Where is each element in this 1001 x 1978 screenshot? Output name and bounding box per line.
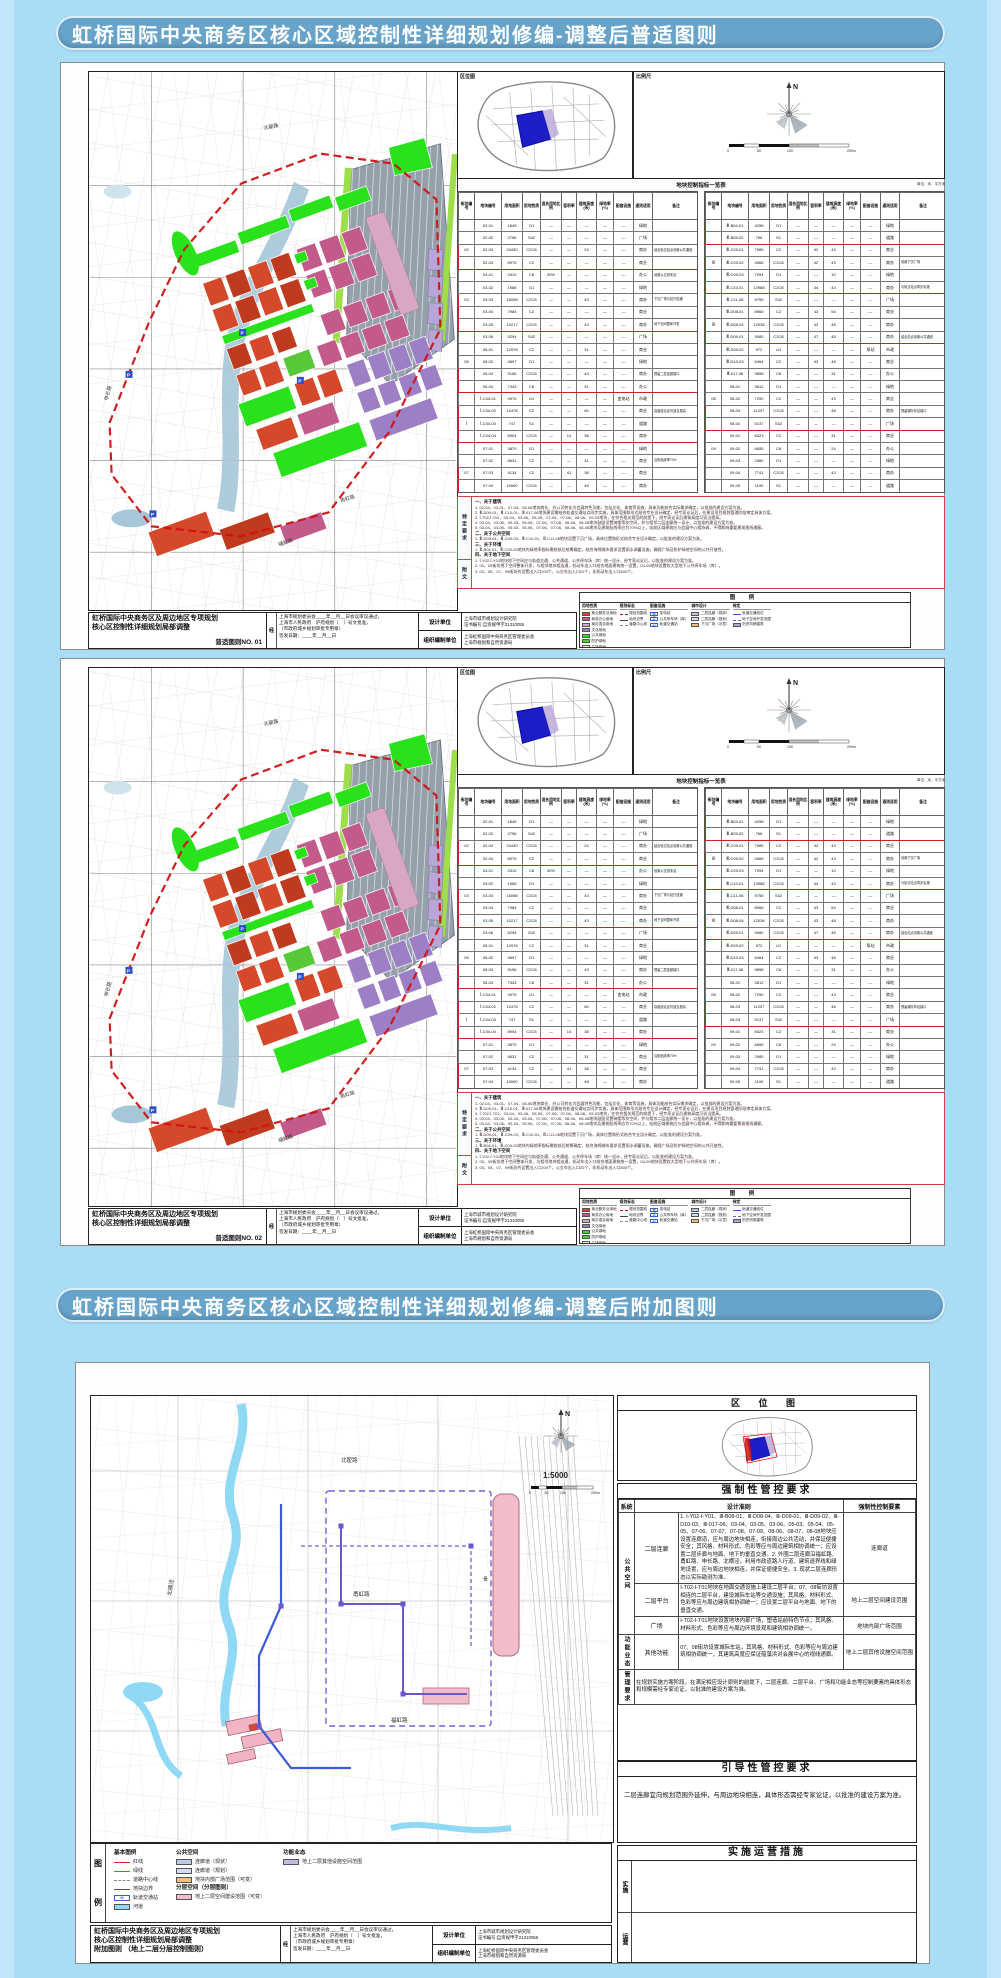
scale-northrose-drawing: N050100200m [634,72,944,168]
legend-item: P公共停车场（库） [650,617,688,622]
table-header-cell: 容积率 [562,789,577,816]
legend-swatch [691,1219,699,1223]
org-unit-label: 组织编制单位 [419,1227,462,1244]
table-row: 03-047984C2—————商业 [459,902,699,914]
legend-swatch [582,1241,590,1244]
legend-item-label: 道路中心线 [133,1876,158,1883]
location-map-label: 区位图 [460,73,475,80]
table-row: 02-022756S42—————广场 [459,828,699,840]
legend-item: P公共停车场（库） [650,1213,688,1218]
table-row: ⅢⅢ-D08-0412038C2C8—4348——商办 [706,319,946,331]
implementation-title: 实施运营措施 [618,1846,916,1861]
legend-swatch [176,1868,192,1874]
legend-swatch [283,1859,299,1865]
table-row: 09-051190S1—————道路 [706,1076,946,1088]
legend-swatch [620,614,628,615]
legend-swatch [176,1894,192,1900]
table-row: 05-0112978C2——31——商业 [459,939,699,951]
legend-swatch [620,1216,628,1217]
legend-item: 变变电站 [650,611,688,616]
table-header-cell: 用地性质 [523,789,541,816]
legend-item: 历史风貌建筑 [733,1218,771,1223]
indicator-table-left: 街坊编号地块编号用地面积用地性质混合用地比例容积率建筑高度(米)绿地率(%)配套… [457,787,698,1089]
legend-item: 防护绿地 [582,1235,617,1240]
implementation-row-cell [632,1913,916,1963]
svg-text:50: 50 [757,745,761,749]
sheet-number: 附加图则 （地上二层分层控制图则） [94,1946,277,1955]
table-row: 0707-034134C2—4138——商业 [459,1063,699,1075]
legend-item-label: 规划范围线 [629,1207,647,1212]
legend-swatch [582,1235,590,1239]
table-row: Ⅰ-C04-0212478C2——60——商业高度经论证可适当提高 [459,405,699,417]
legend-swatch [176,1877,192,1883]
table-row: 0202-0324430C2C8——24——商办结合轨交站点设置公共通道 [459,244,699,256]
legend-item: 公共绿地 [582,633,617,638]
design-unit-cert: 证书编号:自资规甲字21310055 [478,1935,609,1940]
table-row: ⅠⅠ-C04-03747S1—————道路 [459,418,699,430]
legend-swatch [620,1221,628,1222]
legend-item-label: 变电站 [660,611,671,616]
legend-swatch [582,1213,590,1217]
legend-item-label: 规划范围线 [629,611,647,616]
table-row: Ⅲ-B04-014298G1—————绿地 [706,816,946,828]
legend-swatch [582,634,590,638]
legend-panel: 图 例用地性质商业服务业用地商务办公用地商办混合用地文化用地公共绿地防护绿地广场… [579,1188,911,1244]
approval-prefix: 经 [267,1209,277,1244]
legend-item-label: 地上二层空间建设范围（可变） [195,1893,265,1900]
table-header-cell: 地块编号 [475,789,502,816]
legend-item: 连廊道（规划） [176,1867,265,1874]
table-header-cell: 通则适用 [881,193,900,220]
legend-swatch [582,623,590,627]
title-block: 虹桥国际中央商务区及周边地区专项规划核心区控制性详细规划局部调整普适图则NO. … [88,612,577,649]
legend-group-name: 配套设施 [650,604,688,610]
table-row: 09-051190S1—————道路 [706,480,946,492]
legend-item-label: 二层连廊（规划） [701,1213,730,1218]
svg-text:北翟路: 北翟路 [341,1456,358,1464]
notes-body: 一、关于建筑1. 02-04、03-01、07-04、08-06地块商业、办公可… [472,497,944,588]
legend-group: 规划标志规划范围线地块边界道路中心线 [620,604,647,648]
legend-swatch [733,614,741,615]
mandatory-row-text: 07、08街坊设置城际车站，其风格、材料形式、色彩等应与周边建筑相协调统一，其建… [679,1635,844,1670]
location-map-label: 区位图 [460,669,475,676]
page-edge-right [987,0,1001,1978]
table-row: 03-014310C830%————办公设置公交首末站 [459,865,699,877]
legend-group: 规划标志规划范围线地块边界道路中心线 [620,1200,647,1244]
legend-swatch [691,623,699,627]
table-row: 09-047741C2C8——43——商办 [706,1063,946,1075]
approval-prefix: 经 [281,1926,291,1962]
legend-group-name: 待定 [733,1200,771,1206]
svg-text:1:5000: 1:5000 [543,1471,568,1480]
table-row: 0909-026655C8——24——办公 [706,443,946,455]
table-row: ⅢⅢ-C09-024566C2C8—4243——商办设置下沉广场 [706,257,946,269]
table-header-cell: 街坊编号 [706,193,722,220]
table-header-cell: 绿地率(%) [844,193,861,220]
table-header-cell: 混合用地比例 [788,789,809,816]
legend-item: 地上二层其他设施空间范围 [283,1858,362,1865]
table-header-cell: 地块编号 [475,193,502,220]
table-header-cell: 用地性质 [770,789,788,816]
legend-item: 商业服务业用地 [582,611,617,616]
org-unit-name2: 上海市规划和自然资源局 [464,640,574,645]
table-row: 03-021968G1—————绿地 [459,281,699,293]
table-header-cell: 绿地率(%) [597,789,614,816]
legend-item: 商办混合用地 [582,1218,617,1223]
location-inset-box: 区位图 [457,71,633,179]
indicator-table-title: 地块控制指标一览表单位：米、平方米 [457,777,945,786]
svg-text:甬虹路: 甬虹路 [353,1590,370,1598]
scale-box: 比例尺N050100200m [633,71,945,179]
notes-line: 3. 03、05、07、09街坊共设置出入口200个，公交车出入口20个，非机动… [475,569,941,574]
legend-item: 公共绿地 [582,1229,617,1234]
addendum-location-box: 区 位 图 [617,1395,917,1481]
scale-box-label: 比例尺 [636,669,651,676]
approval-prefix: 经 [267,613,277,648]
table-header-cell: 混合用地比例 [788,193,809,220]
legend-item-label: 绿线 [133,1867,143,1874]
table-unit-note: 单位：米、平方米 [917,182,945,187]
table-row: 05-047343C8——31——办公 [459,977,699,989]
table-row: 08-045137S42—————广场 [706,1014,946,1026]
table-row: Ⅰ-C04-014975U1————变电站市政 [459,989,699,1001]
org-unit-label: 组织编制单位 [419,631,462,648]
legend-item: 道路中心线 [620,622,647,627]
legend-swatch [114,1871,130,1872]
legend-item-label: 二层连廊（现状） [701,611,730,616]
special-requirements-notes: 特定要求附文一、关于建筑1. 02-04、03-01、07-04、08-06地块… [457,1092,945,1185]
legend-item: 轨道交通线位 [733,1207,771,1212]
legend-item-label: 地下空间开发范围 [742,617,771,622]
legend-swatch [114,1862,130,1863]
legend-swatch [582,1230,590,1234]
table-row: 0303-0316098C2C8——43——商办下沉广场与站厅连通 [459,294,699,306]
location-map-drawing [458,72,633,178]
legend-item: 规划范围线 [620,1207,647,1212]
legend-group: 配套设施变变电站P公共停车场（库）M轨道交通站 [650,604,688,648]
legend-swatch-icon: P [650,617,658,621]
mandatory-row-name: 二层平台 [635,1584,679,1617]
table-row: 03-065294S42—————广场 [459,927,699,939]
table-row: Ⅲ-C10-0113988C2C8—4443——商办与轨交站点同步实施 [706,281,946,293]
legend-group: 用地性质商业服务业用地商务办公用地商办混合用地文化用地公共绿地防护绿地广场用地轨… [582,1200,617,1244]
legend-item: 规划范围线 [620,611,647,616]
project-title-line2: 核心区控制性详细规划局部调整 [92,624,263,633]
table-row: 03-065294S42—————广场 [459,331,699,343]
legend-item-label: 地块边界 [629,617,643,622]
legend-item: 二层连廊（规划） [691,617,729,622]
legend-item: M轨道交通站 [114,1894,158,1901]
table-row: 02-048975C2—————商业 [459,257,699,269]
legend-item-label: 连廊道（现状） [195,1858,230,1865]
table-header-cell: 绿地率(%) [844,789,861,816]
plot-indicator-table: 街坊编号地块编号用地面积用地性质混合用地比例容积率建筑高度(米)绿地率(%)配套… [458,788,698,1089]
legend-item-label: 地块边界 [133,1885,153,1892]
table-row: Ⅲ-C09-037094G1——10——绿地 [706,865,946,877]
title-block-units: 设计单位上海市城市规划设计研究院证书编号:自资规甲字21310055组织编制单位… [419,1209,576,1244]
table-header-cell: 用地性质 [770,193,788,220]
legend-item: 广场用地 [582,1241,617,1244]
table-row: Ⅲ-C11-069755S42—————广场 [706,890,946,902]
title-block: 虹桥国际中央商务区及周边地区专项规划核心区控制性详细规划局部调整普适图则NO. … [88,1208,577,1245]
plot-indicator-table: 街坊编号地块编号用地面积用地性质混合用地比例容积率建筑高度(米)绿地率(%)配套… [458,192,698,493]
legend-swatch-icon: M [650,1219,658,1223]
table-row: 0202-0324430C2C8——24——商办结合轨交站点设置公共通道 [459,840,699,852]
notes-body: 一、关于建筑1. 02-04、03-01、07-04、08-06地块商业、办公可… [472,1093,944,1184]
table-row: 02-011845G1—————绿地 [459,816,699,828]
legend-panel: 图 例用地性质商业服务业用地商务办公用地商办混合用地文化用地公共绿地防护绿地广场… [579,592,911,648]
approval-line: 签发日期：____年__月__日 [293,1946,430,1952]
table-header-row: 街坊编号地块编号用地面积用地性质混合用地比例容积率建筑高度(米)绿地率(%)配套… [459,193,699,220]
mandatory-row-text: Ⅰ-T02-Ⅰ-T01地块设置地块内部广场，塑造站前特色节点；其风格、材料形式、… [679,1617,844,1635]
svg-text:100: 100 [560,1491,566,1495]
legend-item-label: 历史风貌建筑 [742,1218,764,1223]
table-row: 09-032980G1—————绿地 [706,455,946,467]
mandatory-row-name: 其他功能 [635,1635,679,1670]
special-requirements-notes: 特定要求附文一、关于建筑1. 02-04、03-01、07-04、08-06地块… [457,496,945,589]
table-header-cell: 绿地率(%) [597,193,614,220]
table-row: 08-0311207C2C8——48——商办预留城际车站接口 [706,1001,946,1013]
legend-swatch [620,625,628,626]
svg-text:0: 0 [727,149,729,153]
legend-item: 商务办公用地 [582,617,617,622]
universal-plan-sheet-1: PPPP北翟路申长路甬虹路福虹路区位图比例尺N050100200m地块控制指标一… [60,62,945,650]
table-header-cell: 备注 [900,193,946,220]
table-header-cell: 用地面积 [749,789,770,816]
indicator-table-left: 街坊编号地块编号用地面积用地性质混合用地比例容积率建筑高度(米)绿地率(%)配套… [457,191,698,493]
table-unit-note: 单位：米、平方米 [917,778,945,783]
table-header-cell: 地块编号 [722,193,749,220]
table-row: 0909-026655C8——24——办公 [706,1039,946,1051]
addendum-map-drawing: N1:5000050100200m北翟路申长路甬虹路福虹路北横泾 [91,1396,613,1842]
legend-item: 二层连廊（现状） [691,1207,729,1212]
legend-swatch [582,1208,590,1212]
legend-swatch-icon: 变 [650,612,658,616]
legend-group-name: 用地性质 [582,604,617,610]
legend-group: 待定轨道交通线位地下空间开发范围历史风貌建筑 [733,604,771,648]
location-map-drawing [707,1412,827,1480]
location-map-drawing [458,668,633,774]
legend-item: 道路中心线 [114,1876,158,1883]
legend-item-label: 商业服务业用地 [592,1207,617,1212]
guidance-text: 二层连廊宜向规划范围外延伸，与周边地块相连，具体形态需经专家论证，以批准的建设方… [618,1777,916,1815]
svg-text:50: 50 [545,1491,549,1495]
legend-group: 分层空间（分层图则）地上二层空间建设范围（可变） [176,1883,265,1900]
table-row: 07-028631C2——31——商业沿街贴线率70% [459,455,699,467]
table-header-row: 街坊编号地块编号用地面积用地性质混合用地比例容积率建筑高度(米)绿地率(%)配套… [706,789,946,816]
legend-item-label: 二层连廊（现状） [701,1207,730,1212]
legend-item-label: 轨道交通站 [660,622,678,627]
design-unit-cert: 证书编号:自资规甲字21310055 [464,1218,574,1223]
table-header-cell: 用地性质 [523,193,541,220]
table-row: ⅢⅢ-D08-0412038C2C8—4348——商办 [706,915,946,927]
table-header-cell: 容积率 [562,193,577,220]
org-unit-name2: 上海市规划和自然资源局 [478,1953,609,1958]
legend-group-name: 功能业态 [283,1848,362,1856]
legend-item-label: 下沉广场（示意） [701,1218,730,1223]
core-area-map-drawing: PPPP北翟路申长路甬虹路福虹路 [89,668,457,1206]
page-edge-left [0,0,14,1978]
table-header-cell: 建筑高度(米) [577,193,597,220]
legend-group-name: 规划标志 [620,604,647,610]
legend-item-label: 地块边界 [629,1213,643,1218]
legend-group: 配套设施变变电站P公共停车场（库）M轨道交通站 [650,1200,688,1244]
mandatory-row-element: 连廊道 [843,1513,915,1584]
table-header-cell: 容积率 [809,789,824,816]
management-text: 在规划实施方案阶段，在满足相应设计原则的前提下，二层连廊、二层平台、广场和功能业… [635,1670,916,1705]
title-block-project: 虹桥国际中央商务区及周边地区专项规划核心区控制性详细规划局部调整附加图则 （地上… [91,1926,281,1962]
svg-text:200m: 200m [847,745,856,749]
indicator-table-right: 街坊编号地块编号用地面积用地性质混合用地比例容积率建筑高度(米)绿地率(%)配套… [704,191,945,493]
table-row: 09-018423C2——31——商业 [706,1026,946,1038]
legend-group-name: 待定 [733,604,771,610]
mandatory-system-label: 功能业态 [619,1635,635,1670]
table-row: 09-018423C2——31——商业 [706,430,946,442]
table-row: 0808-027290C2——43——商业 [706,989,946,1001]
legend-item: 商业服务业用地 [582,1207,617,1212]
table-row: Ⅲ-C09-037094G1——10——绿地 [706,269,946,281]
location-map-title: 区 位 图 [618,1396,916,1411]
org-unit-name2: 上海市规划和自然资源局 [464,1236,574,1241]
table-row: Ⅲ-B04-014298G1—————绿地 [706,220,946,232]
banner-addendum-plan-text: 虹桥国际中央商务区核心区域控制性详细规划修编-调整后附加图则 [72,1291,719,1320]
table-header-cell: 备注 [653,789,699,816]
legend-item: M轨道交通站 [650,1218,688,1223]
legend-item: 商办混合用地 [582,622,617,627]
legend-item: 二层连廊（现状） [691,611,729,616]
mandatory-requirements-panel: 强制性管控要求系统设计准则强制性控制要素公共空间二层连廊1. Ⅰ-Y02-Ⅰ-Y… [617,1483,917,1761]
table-header-cell: 配套设施 [614,789,634,816]
legend-item: 红线 [114,1858,158,1865]
table-header-cell: 混合用地比例 [541,193,562,220]
legend-swatch [620,1210,628,1211]
legend-item-label: 下沉广场（示意） [701,622,730,627]
mandatory-row: 功能业态其他功能07、08街坊设置城际车站，其风格、材料形式、色彩等应与周边建筑… [619,1635,916,1670]
legend-group: 基本图例红线绿线道路中心线地块边界M轨道交通站河道 [114,1848,158,1910]
table-header-cell: 建筑高度(米) [824,789,844,816]
plot-indicator-table: 街坊编号地块编号用地面积用地性质混合用地比例容积率建筑高度(米)绿地率(%)配套… [705,788,945,1089]
svg-text:50: 50 [757,149,761,153]
table-row: 08-013812G1—————绿地 [706,977,946,989]
legend-item-label: 轨道交通线位 [742,1207,764,1212]
approval-line: 签发日期：____年__月__日 [279,633,416,639]
table-header-cell: 建筑高度(米) [577,789,597,816]
legend-item-label: 公共停车场（库） [660,1213,689,1218]
mandatory-row-text: 1. Ⅰ-Y02-Ⅰ-Y01、Ⅲ-B08-01、Ⅲ-D08-04、Ⅲ-D09-0… [679,1513,844,1584]
table-row: 02-022756S42—————广场 [459,232,699,244]
table-row: ⅢⅢ-C09-024566C2C8—4243——商办设置下沉广场 [706,853,946,865]
implementation-row: 运营 [618,1913,916,1963]
legend-item: 二层连廊（规划） [691,1213,729,1218]
legend-group: 公共空间连廊道（现状）连廊道（规划）地块内部广场范围（可变） [176,1848,265,1883]
legend-group-name: 基本图例 [114,1848,158,1856]
svg-text:N: N [565,1411,570,1418]
table-row: 03-0510217C2C8——43——商办地下空间整体开发 [459,319,699,331]
table-header-cell: 通则适用 [881,789,900,816]
legend-swatch [582,628,590,632]
table-row: Ⅲ-D09-019080C2C8—4745——商办结合站点设置公共通道 [706,331,946,343]
regulatory-plan-map: PPPP北翟路申长路甬虹路福虹路 [88,71,458,611]
table-row: 03-047984C2—————商业 [459,306,699,318]
legend-swatch [582,1219,590,1223]
table-row: Ⅰ-C04-0212478C2——60——商业高度经论证可适当提高 [459,1001,699,1013]
mandatory-header-row: 系统设计准则强制性控制要素 [619,1500,916,1513]
legend-swatch [691,617,699,621]
table-header-cell: 用地面积 [502,193,523,220]
legend-group-name: 用地性质 [582,1200,617,1206]
legend-item: 地下空间开发范围 [733,1213,771,1218]
table-row: Ⅲ-C09-017985C2—4243——商业 [706,840,946,852]
table-header-cell: 地块编号 [722,789,749,816]
table-row: Ⅰ-C04-048904C2C8—1438——商办 [459,430,699,442]
table-row: Ⅲ-D08-018966C2—4354——商业 [706,902,946,914]
legend-item: 商务办公用地 [582,1213,617,1218]
legend-item: 地块边界 [620,1213,647,1218]
mandatory-title: 强制性管控要求 [618,1484,916,1499]
legend-swatch [582,1224,590,1228]
table-row: 05-0112978C2——31——商业 [459,343,699,355]
legend-swatch [114,1889,130,1890]
table-header-cell: 配套设施 [861,193,881,220]
implementation-row-label: 实施 [618,1861,632,1912]
legend-item: 道路中心线 [620,1218,647,1223]
legend-item-label: 商办混合用地 [592,622,614,627]
legend-item-label: 红线 [133,1858,143,1865]
legend-item: 地块边界 [620,617,647,622]
table-row: 07-013870G1—————绿地 [459,1039,699,1051]
table-row: Ⅲ-D10-036464C2—4348——商业 [706,952,946,964]
legend-swatch [691,1208,699,1212]
legend-group-name: 城市设计 [691,604,729,610]
indicator-table-title: 地块控制指标一览表单位：米、平方米 [457,181,945,190]
project-title-line2: 核心区控制性详细规划局部调整 [94,1937,277,1946]
legend-item-label: 商办混合用地 [592,1218,614,1223]
table-row: 08-013812G1—————绿地 [706,381,946,393]
guidance-panel: 引导性管控要求二层连廊宜向规划范围外延伸，与周边地块相连，具体形态需经专家论证，… [617,1761,917,1843]
legend-swatch [691,1213,699,1217]
legend-swatch [582,617,590,621]
legend-item: 历史风貌建筑 [733,622,771,627]
legend-swatch [176,1859,192,1865]
legend-title: 图 例 [580,593,910,603]
svg-text:100: 100 [787,745,793,749]
mandatory-row: 二层平台Ⅰ-T02-Ⅰ-T01地块在地面交通设施上建设二层平台；07、08街坊设… [619,1584,916,1617]
mandatory-row: 公共空间二层连廊1. Ⅰ-Y02-Ⅰ-Y01、Ⅲ-B08-01、Ⅲ-D08-04… [619,1513,916,1584]
table-header-cell: 备注 [900,789,946,816]
title-block-project: 虹桥国际中央商务区及周边地区专项规划核心区控制性详细规划局部调整普适图则NO. … [89,613,267,648]
legend-item-label: 轨道交通站 [660,1218,678,1223]
title-block-project: 虹桥国际中央商务区及周边地区专项规划核心区控制性详细规划局部调整普适图则NO. … [89,1209,267,1244]
legend-swatch [733,623,741,627]
notes-side-label-2: 附文 [458,559,471,588]
table-row: 07-0410060C2C8——48——商办 [459,480,699,492]
legend-swatch [620,620,628,621]
legend-item-label: 公共停车场（库） [660,617,689,622]
table-row: Ⅲ-C09-017985C2—4243——商业 [706,244,946,256]
legend-item: 河道 [114,1903,158,1910]
mandatory-row-element: 地上二层空间建设范围 [843,1584,915,1617]
legend-swatch [114,1880,130,1881]
table-row: Ⅲ-C10-0113988C2C8—4443——商办与轨交站点同步实施 [706,877,946,889]
regulatory-plan-map: PPPP北翟路申长路甬虹路福虹路 [88,667,458,1207]
table-row: 03-014310C830%————办公设置公交首末站 [459,269,699,281]
mandatory-row: 广场Ⅰ-T02-Ⅰ-T01地块设置地块内部广场，塑造站前特色节点；其风格、材料形… [619,1617,916,1635]
banner-addendum-plan: 虹桥国际中央商务区核心区域控制性详细规划修编-调整后附加图则 [56,1288,945,1322]
table-row: 07-0410060C2C8——48——商办 [459,1076,699,1088]
mandatory-row-name: 二层连廊 [635,1513,679,1584]
scale-box: 比例尺N050100200m [633,667,945,775]
svg-text:0: 0 [529,1491,531,1495]
